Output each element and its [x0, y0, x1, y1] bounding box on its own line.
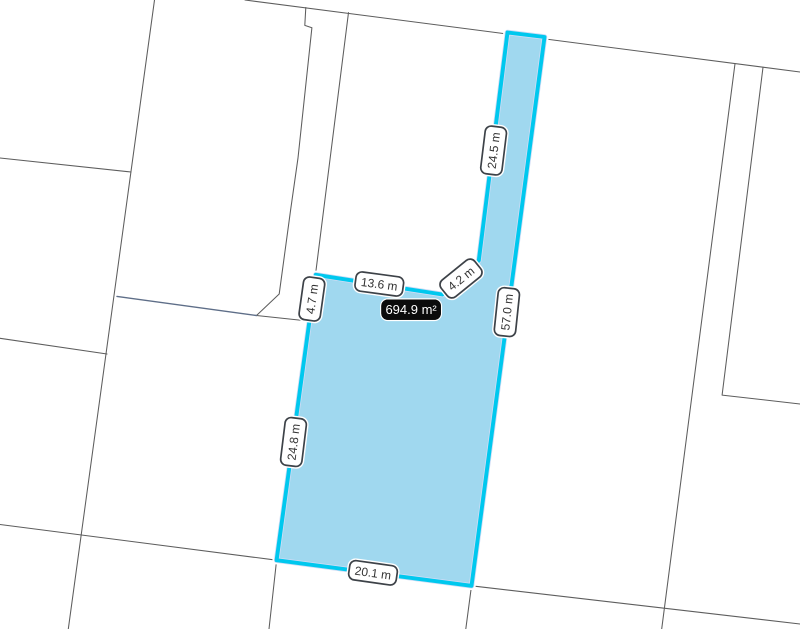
svg-text:694.9 m²: 694.9 m²: [385, 302, 437, 317]
